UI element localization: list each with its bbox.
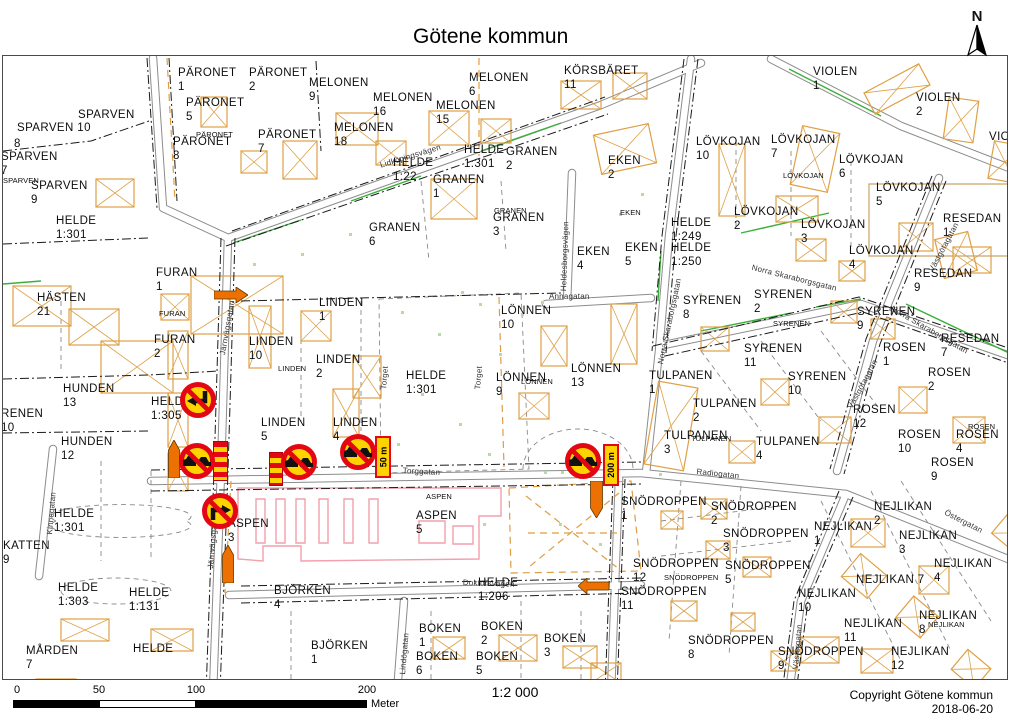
scale-unit: Meter [371, 698, 399, 710]
block-label: ROSEN 4 [956, 429, 999, 456]
block-label: HELDE 1:301 [464, 144, 504, 171]
work-direction-arrow-down [590, 481, 603, 523]
block-label: BOKEN 2 [481, 621, 523, 648]
block-label: LINDEN 5 [261, 417, 306, 444]
block-label: VIOLEN 1 [813, 66, 858, 93]
street-label: Norra Skaraborgsgatan [656, 278, 683, 365]
block-label: LÖVKOJAN 7 [771, 134, 836, 161]
block-label: LÖVKOJAN 4 [849, 245, 914, 272]
no-left-turn-sign [179, 381, 217, 419]
block-label: HELDE 1:131 [129, 587, 169, 614]
block-label: BJÖRKEN 4 [274, 585, 331, 612]
scale-segment [99, 700, 196, 708]
scale-tick: 0 [14, 684, 20, 696]
block-label: HUNDEN 12 [61, 436, 113, 463]
block-label: GRANEN 3 [493, 212, 545, 239]
block-label: SPARVEN [78, 109, 135, 123]
scale-tick: 100 [187, 684, 205, 696]
block-label: LÖVKOJAN 3 [801, 219, 866, 246]
no-right-turn-sign [201, 492, 239, 530]
block-label: BOKEN 6 [416, 651, 458, 678]
block-label: LINDEN 10 [249, 336, 294, 363]
block-label: LINDEN 1 [319, 297, 364, 324]
block-label: FURAN 1 [156, 267, 198, 294]
block-label: LÖVKOJAN 2 [734, 206, 799, 233]
block-label: HÄSTEN 21 [37, 292, 86, 319]
map-area: SPARVENSPARVEN 108SPARVEN 7SPARVENSPARVE… [2, 55, 1008, 680]
block-label: LÖVKOJAN [783, 172, 824, 181]
street-label: Annagatan [549, 292, 590, 301]
block-label: GRANEN 2 [506, 146, 558, 173]
block-label: KATTEN 9 [3, 540, 50, 567]
block-label: BOKEN 5 [476, 651, 518, 678]
block-label: MELONEN 16 [373, 92, 433, 119]
map-annotations-layer: SPARVENSPARVEN 108SPARVEN 7SPARVENSPARVE… [3, 56, 1007, 679]
block-label: SNÖDROPPEN [664, 574, 718, 583]
block-label: VIOLEN 2 [916, 92, 961, 119]
block-label: HELDE 1:249 [671, 217, 711, 244]
block-label: EKEN 5 [625, 242, 658, 269]
block-label: NEJLIKAN 12 [891, 646, 949, 673]
block-label: BJÖRKEN 1 [311, 640, 368, 667]
work-direction-arrow-up [168, 440, 180, 483]
scale-tick: 50 [93, 684, 105, 696]
no-overtaking-sign [339, 433, 377, 471]
block-label: HELDE 1:303 [58, 582, 98, 609]
scale-bar-segments [13, 700, 367, 708]
work-direction-arrow-up [222, 545, 234, 588]
scale-bar: 0 50 100 200 Meter [13, 684, 433, 716]
block-label: TULPANEN 4 [756, 436, 820, 463]
block-label: NEJLIKAN 11 [844, 618, 902, 645]
block-label: HELDE 1:301 [54, 508, 94, 535]
block-label: TULPANEN 2 [693, 398, 757, 425]
block-label: GRANEN 6 [369, 222, 421, 249]
street-label: Doktorsvägen [463, 578, 515, 589]
street-label: Torget [379, 366, 390, 390]
block-label: TULPANEN [691, 435, 731, 444]
block-label: ROSEN 9 [931, 457, 974, 484]
block-label: NEJLIKAN 10 [798, 588, 856, 615]
block-label: ROSEN 2 [928, 367, 971, 394]
block-label: LINDEN [278, 365, 306, 374]
block-label: ROSEN 10 [898, 429, 941, 456]
street-label: Radiogatan [696, 467, 740, 481]
block-label: ASPEN [426, 493, 452, 502]
block-label: NEJLIKAN 1 [814, 521, 872, 548]
block-label: MÅRDEN 7 [26, 645, 78, 672]
block-label: HELDE 1:250 [671, 242, 711, 269]
block-label: HELDE [133, 643, 173, 657]
street-label: Västgötagatan [846, 358, 880, 410]
street-label: Torget [473, 366, 484, 390]
block-label: GRANEN 1 [433, 174, 485, 201]
no-overtaking-sign [564, 442, 602, 480]
block-label: SYRENEN 2 [754, 289, 812, 316]
block-label: LÖVKOJAN 5 [876, 182, 941, 209]
block-label: NEJLIKAN 4 [934, 558, 992, 585]
block-label: SNÖDROPPEN 5 [725, 560, 811, 587]
block-label: SNÖDROPPEN 2 [711, 501, 797, 528]
block-label: SNÖDROPPEN 11 [621, 586, 707, 613]
block-label: SYRENEN 10 [788, 371, 846, 398]
block-label: EKEN [620, 209, 641, 218]
distance-plate: 50 m [375, 436, 391, 478]
block-label: SNÖDROPPEN 3 [723, 528, 809, 555]
street-label: Torggatan [403, 466, 441, 477]
block-label: NEJLIKAN 7 [856, 574, 925, 588]
block-label: ROSEN [968, 423, 995, 432]
block-label: FURAN 2 [154, 334, 196, 361]
no-overtaking-sign [178, 442, 216, 480]
block-label: MELONEN 15 [436, 100, 496, 127]
work-direction-arrow-left [578, 578, 609, 599]
block-label: HELDE 1:301 [406, 370, 446, 397]
block-label: FURAN [159, 310, 185, 319]
north-arrow: N [962, 8, 992, 62]
block-label: 8 [14, 138, 21, 152]
block-label: PÄRONET 1 [178, 67, 236, 94]
scale-segment [196, 700, 367, 708]
block-label: SYRENEN 8 [683, 295, 741, 322]
block-label: PÄRONET 5 [186, 97, 244, 124]
block-label: EKEN 4 [577, 246, 610, 273]
street-label: Lindögatan [398, 633, 411, 675]
block-label: SNÖDROPPEN 8 [688, 635, 774, 662]
scale-ratio: 1:2 000 [455, 684, 575, 700]
block-label: SPARVEN 7 [2, 151, 58, 178]
work-direction-arrow-right [214, 287, 248, 308]
block-label: MELONEN 6 [469, 72, 529, 99]
block-label: ASPEN 5 [416, 510, 457, 537]
block-label: MELONEN 18 [334, 122, 394, 149]
block-label: HELDE 1:301 [56, 215, 96, 242]
block-label: LÖVKOJAN 6 [839, 154, 904, 181]
block-label: SYRENEN 11 [744, 343, 802, 370]
block-label: HUNDEN 13 [63, 383, 115, 410]
no-overtaking-sign [280, 443, 318, 481]
copyright-date: 2018-06-20 [850, 702, 993, 716]
block-label: LÖNNEN 13 [571, 363, 621, 390]
block-label: NEJLIKAN 3 [899, 530, 957, 557]
copyright: Copyright Götene kommun 2018-06-20 [850, 688, 993, 717]
distance-plate: 200 m [603, 444, 619, 486]
block-label: TULPANEN 1 [649, 370, 713, 397]
block-label: NEJLIKAN 2 [874, 501, 932, 528]
street-label: Heldesborgsvägen [559, 221, 571, 291]
block-label: SYRENEN [773, 320, 810, 329]
block-label: PÄRONET 8 [173, 136, 231, 163]
block-label: PÄRONET 7 [258, 129, 316, 156]
block-label: VIOLEN [989, 131, 1008, 145]
copyright-line: Copyright Götene kommun [850, 688, 993, 702]
street-label: Järnvägsgatan [218, 300, 237, 356]
block-label: MELONEN 9 [309, 77, 369, 104]
scale-tick: 200 [358, 684, 376, 696]
block-label: SPARVEN 9 [31, 180, 88, 207]
block-label: ROSEN 12 [853, 404, 896, 431]
scale-segment [13, 700, 99, 708]
block-label: LÖNNEN [521, 378, 553, 387]
block-label: LÖNNEN 10 [501, 305, 551, 332]
block-label: EKEN 2 [608, 155, 641, 182]
block-label: ROSEN 1 [883, 342, 926, 369]
block-label: BOKEN 3 [544, 633, 586, 660]
block-label: SPARVEN 10 [17, 122, 91, 136]
block-label: LÖVKOJAN 10 [696, 136, 761, 163]
block-label: LINDEN 2 [316, 354, 361, 381]
block-label: RENEN 10 [2, 408, 43, 435]
block-label: RESEDAN 9 [914, 268, 972, 295]
block-label: BOKEN 1 [419, 623, 461, 650]
north-arrow-icon [964, 23, 990, 57]
block-label: PÄRONET 2 [249, 67, 307, 94]
block-label: SNÖDROPPEN 1 [621, 496, 707, 523]
block-label: KÖRSBÄRET 11 [564, 65, 639, 92]
block-label: NEJLIKAN [928, 621, 965, 630]
page-title: Götene kommun [413, 25, 573, 49]
